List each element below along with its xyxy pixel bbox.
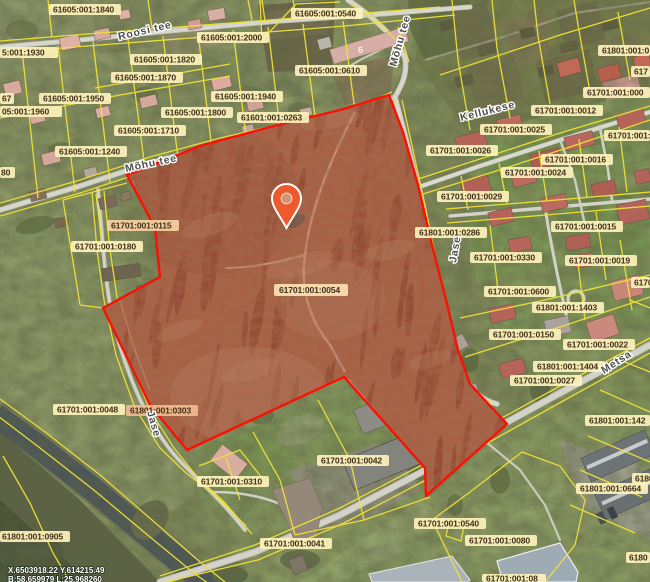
svg-text:67: 67 bbox=[2, 94, 12, 104]
svg-text:80: 80 bbox=[1, 168, 11, 178]
svg-text:61701:001:08: 61701:001:08 bbox=[486, 574, 538, 582]
svg-text:61801:001:0286: 61801:001:0286 bbox=[419, 228, 480, 238]
svg-text:61605:001:0610: 61605:001:0610 bbox=[299, 66, 360, 76]
svg-text:61701:001:0041: 61701:001:0041 bbox=[264, 539, 325, 549]
svg-text:61801:001:142: 61801:001:142 bbox=[589, 416, 646, 426]
svg-text:X.6503918.22 Y.614215.49: X.6503918.22 Y.614215.49 bbox=[8, 566, 105, 575]
svg-text:61701:001:0042: 61701:001:0042 bbox=[321, 456, 382, 466]
svg-text:61701:001:0600: 61701:001:0600 bbox=[488, 287, 549, 297]
svg-text:61701:001:0025: 61701:001:0025 bbox=[484, 125, 545, 135]
svg-text:61701:001:0026: 61701:001:0026 bbox=[430, 146, 491, 156]
svg-text:61605:001:1940: 61605:001:1940 bbox=[215, 92, 276, 102]
svg-text:61701:001:0310: 61701:001:0310 bbox=[201, 477, 262, 487]
svg-text:617: 617 bbox=[634, 67, 648, 77]
svg-text:61701:001:0180: 61701:001:0180 bbox=[75, 242, 136, 252]
svg-text:6180: 6180 bbox=[629, 553, 648, 563]
svg-text:61701:001:000: 61701:001:000 bbox=[587, 88, 644, 98]
svg-text:61605:001:1820: 61605:001:1820 bbox=[134, 55, 195, 65]
svg-text:61701:001:0012: 61701:001:0012 bbox=[535, 106, 596, 116]
svg-text:61701:001:0019: 61701:001:0019 bbox=[569, 256, 630, 266]
svg-text:61801:001:1403: 61801:001:1403 bbox=[536, 303, 597, 313]
svg-text:61801:001:0664: 61801:001:0664 bbox=[580, 484, 641, 494]
svg-text:61605:001:1950: 61605:001:1950 bbox=[43, 94, 104, 104]
svg-text:61701:001:: 61701:001: bbox=[608, 131, 650, 141]
svg-text:61801:001:0: 61801:001:0 bbox=[602, 46, 649, 56]
svg-text:61605:001:1840: 61605:001:1840 bbox=[53, 5, 114, 15]
svg-text:05:001:1960: 05:001:1960 bbox=[2, 107, 49, 117]
svg-text:61605:001:2000: 61605:001:2000 bbox=[201, 33, 262, 43]
svg-text:6170: 6170 bbox=[634, 278, 650, 288]
svg-text:61701:001:0027: 61701:001:0027 bbox=[514, 376, 575, 386]
svg-text:61701:001:0540: 61701:001:0540 bbox=[418, 519, 479, 529]
svg-text:61701:001:0080: 61701:001:0080 bbox=[469, 536, 530, 546]
svg-text:61701:001:0054: 61701:001:0054 bbox=[279, 285, 340, 295]
svg-text:61801:001:1404: 61801:001:1404 bbox=[537, 362, 598, 372]
svg-text:61801:001:0303: 61801:001:0303 bbox=[130, 406, 191, 416]
svg-text:61605:001:1710: 61605:001:1710 bbox=[118, 126, 179, 136]
svg-text:61701:001:0048: 61701:001:0048 bbox=[57, 405, 118, 415]
svg-text:6: 6 bbox=[358, 45, 363, 55]
svg-text:61601:001:0263: 61601:001:0263 bbox=[241, 113, 302, 123]
svg-text:61701:001:0022: 61701:001:0022 bbox=[567, 340, 628, 350]
svg-text:6180: 6180 bbox=[635, 474, 650, 484]
svg-text:61701:001:0115: 61701:001:0115 bbox=[111, 221, 172, 231]
svg-text:61605:001:1240: 61605:001:1240 bbox=[59, 147, 120, 157]
svg-text:61701:001:0016: 61701:001:0016 bbox=[545, 155, 606, 165]
svg-text:61701:001:0150: 61701:001:0150 bbox=[493, 330, 554, 340]
svg-text:61701:001:0029: 61701:001:0029 bbox=[441, 192, 502, 202]
svg-text:61605:001:1800: 61605:001:1800 bbox=[165, 108, 226, 118]
svg-text:5:001:1930: 5:001:1930 bbox=[2, 48, 45, 58]
svg-text:61701:001:0015: 61701:001:0015 bbox=[555, 222, 616, 232]
svg-text:61605:001:1870: 61605:001:1870 bbox=[115, 73, 176, 83]
svg-text:61801:001:0905: 61801:001:0905 bbox=[2, 532, 63, 542]
svg-text:61701:001:0024: 61701:001:0024 bbox=[505, 168, 566, 178]
svg-text:61605:001:0540: 61605:001:0540 bbox=[295, 9, 356, 19]
svg-text:61701:001:0330: 61701:001:0330 bbox=[474, 253, 535, 263]
svg-text:B:58.659979 L:25.968260: B:58.659979 L:25.968260 bbox=[8, 575, 102, 582]
